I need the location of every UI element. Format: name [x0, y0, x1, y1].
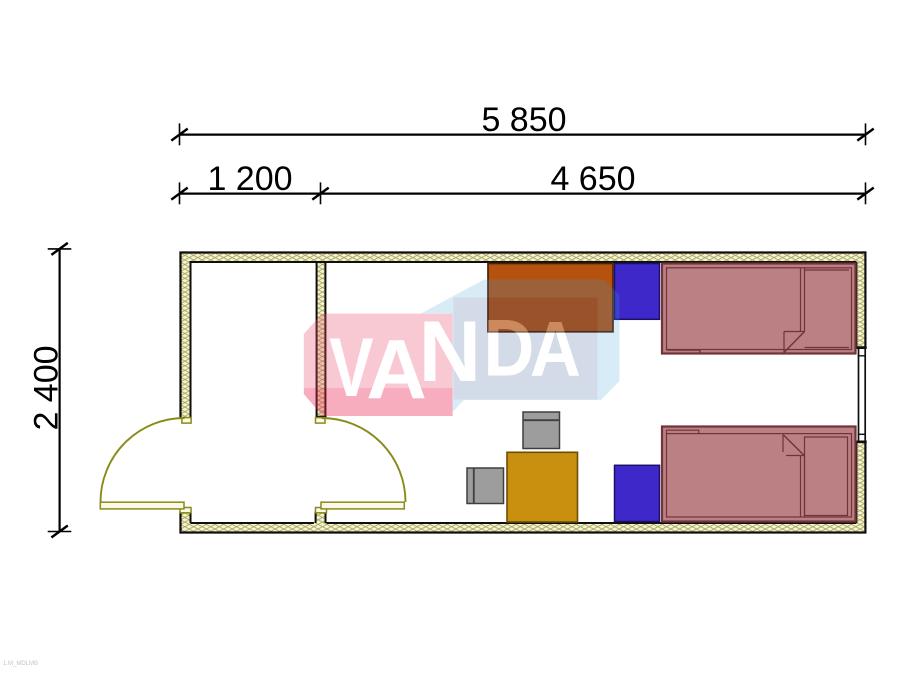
- svg-text:A: A: [530, 305, 581, 392]
- svg-text:1.M_MDLMB: 1.M_MDLMB: [3, 661, 38, 667]
- svg-text:5 850: 5 850: [481, 101, 566, 139]
- svg-text:1 200: 1 200: [207, 160, 292, 198]
- svg-text:N: N: [419, 304, 481, 400]
- svg-text:4 650: 4 650: [550, 160, 635, 198]
- svg-text:D: D: [483, 303, 534, 394]
- svg-text:2 400: 2 400: [28, 345, 66, 430]
